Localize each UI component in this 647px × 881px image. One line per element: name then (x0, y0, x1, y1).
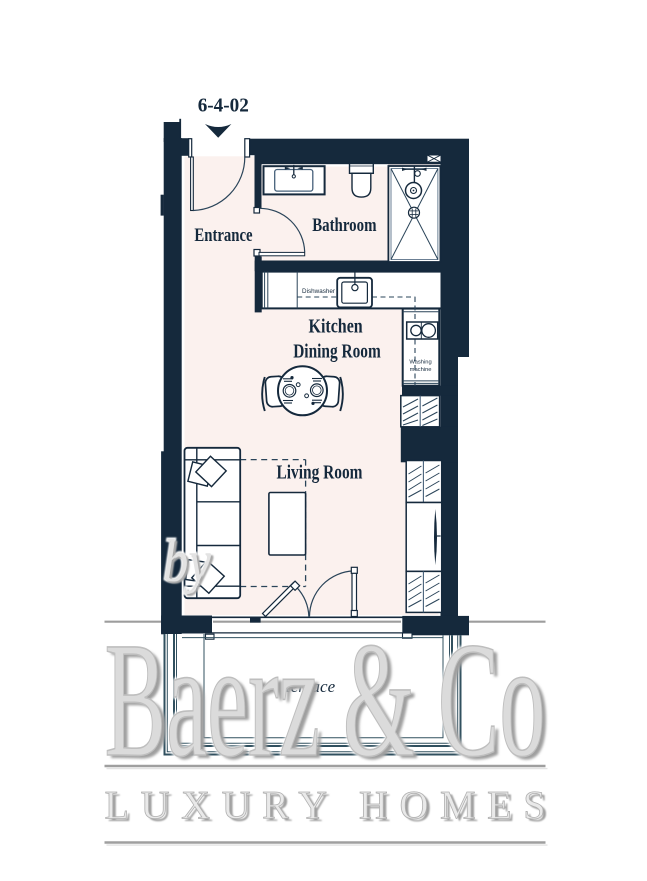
svg-text:Dining Room: Dining Room (293, 341, 381, 362)
svg-text:machine: machine (410, 367, 432, 373)
svg-text:Dishwasher: Dishwasher (302, 288, 335, 295)
svg-text:6-4-02: 6-4-02 (198, 95, 249, 117)
svg-text:Entrance: Entrance (194, 225, 252, 246)
svg-text:by: by (163, 528, 211, 594)
svg-text:Washing: Washing (409, 360, 431, 366)
svg-text:Living Room: Living Room (277, 462, 363, 483)
svg-text:Bathroom: Bathroom (312, 215, 376, 236)
svg-text:Kitchen: Kitchen (309, 316, 363, 338)
svg-text:Baerz & Co: Baerz & Co (105, 608, 546, 791)
